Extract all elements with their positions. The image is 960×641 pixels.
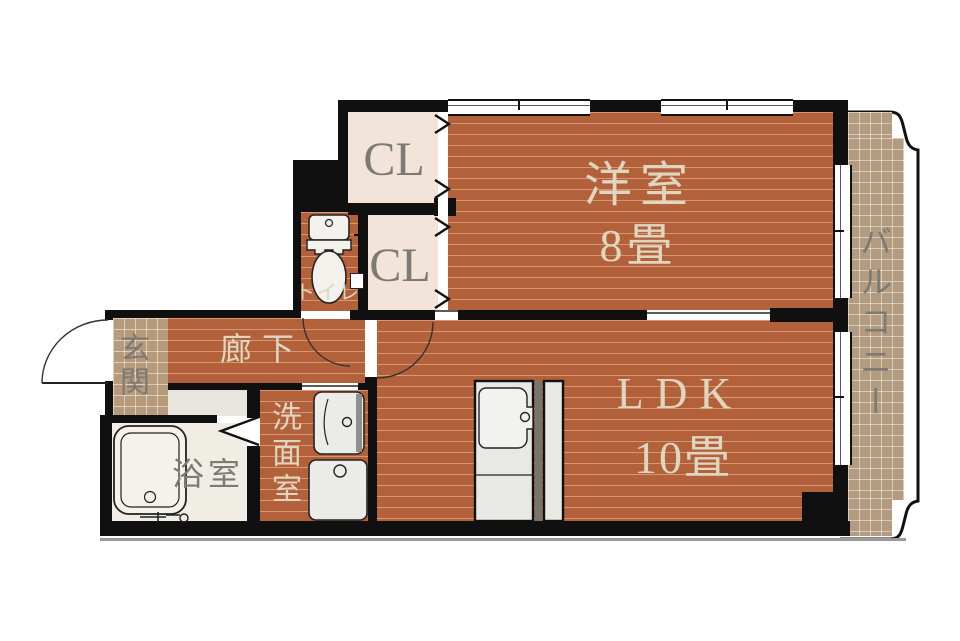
ldk-size-label: 10畳 [634, 435, 732, 481]
toilet-door-arc [298, 316, 356, 370]
toilet-label: トイレ [295, 283, 361, 303]
wall [168, 383, 302, 390]
window [833, 332, 852, 465]
window-handle [835, 396, 844, 398]
floor-plan: バルコニー [0, 0, 960, 641]
balcony-label: バルコニー [858, 225, 890, 425]
window-rail [840, 332, 841, 465]
wall [100, 521, 850, 536]
bathroom-label: 浴室 [172, 458, 244, 490]
wall [338, 112, 348, 162]
folding-door-icon [434, 110, 454, 312]
bathroom-folding-door-icon [213, 414, 263, 448]
wall-tick [354, 234, 366, 236]
bathroom-vestibule [168, 390, 247, 416]
washroom-label: 洗面室 [268, 401, 298, 509]
genkan-label: 玄関 [116, 332, 146, 400]
youshitsu-label: 洋室 [584, 162, 696, 210]
washroom-door-rail [302, 385, 358, 387]
wall [802, 492, 848, 523]
washbasin-icon [312, 389, 372, 459]
ground-shadow-line [100, 538, 906, 541]
wall [833, 100, 848, 165]
ldk-label: LDK [617, 372, 743, 416]
wall [458, 310, 647, 320]
window-handle [835, 230, 844, 232]
closet-upper-label: CL [363, 136, 424, 184]
closet-lower-label: CL [369, 242, 430, 290]
ldk-floor [377, 320, 833, 521]
entrance-door-arc [36, 314, 116, 389]
ldk-door-arc [370, 315, 440, 385]
wall [348, 203, 438, 215]
sliding-door-rail [647, 312, 770, 314]
wall [293, 160, 348, 212]
hallway-label: 廊下 [220, 333, 304, 365]
balcony-floor [848, 498, 892, 536]
window-handle [726, 101, 728, 110]
youshitsu-size-label: 8畳 [600, 223, 677, 269]
washing-machine-icon [306, 457, 370, 525]
kitchen-sink-icon [473, 379, 565, 523]
wall [770, 308, 848, 322]
window-handle [518, 101, 520, 110]
wall [105, 310, 293, 318]
wall [247, 446, 260, 527]
wall [590, 100, 663, 112]
